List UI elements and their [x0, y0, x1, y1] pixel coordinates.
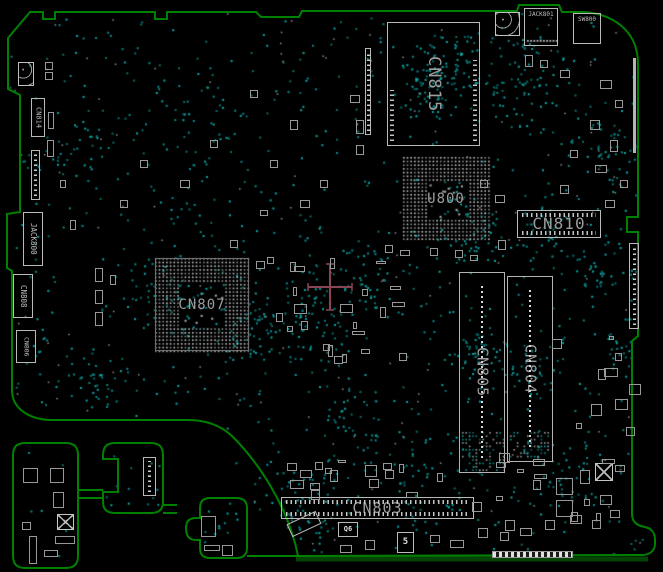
- pin-column: [473, 60, 477, 141]
- passive-footprint: [400, 250, 410, 256]
- passive-footprint: [340, 545, 352, 553]
- right-edge-strip: [633, 58, 636, 153]
- passive-footprint: [50, 468, 64, 483]
- cn814-label: CN814: [35, 107, 42, 128]
- passive-footprint: [210, 140, 218, 148]
- passive-footprint: [60, 180, 66, 188]
- corner-module: [495, 12, 520, 36]
- passive-footprint: [287, 463, 297, 471]
- passive-footprint: [276, 313, 283, 322]
- u5-label: 5: [403, 538, 408, 547]
- passive-footprint: [365, 465, 377, 477]
- pin-row: [522, 231, 596, 235]
- passive-footprint: [580, 470, 590, 484]
- passive-footprint: [615, 353, 623, 361]
- passive-footprint: [45, 72, 53, 80]
- top-left-module: [18, 62, 34, 86]
- passive-footprint: [496, 462, 506, 468]
- passive-footprint: [478, 528, 488, 538]
- cn807-label: CN807: [178, 298, 225, 312]
- passive-footprint: [362, 289, 368, 297]
- passive-footprint: [350, 95, 360, 103]
- passive-footprint: [545, 520, 555, 530]
- passive-footprint: [399, 353, 407, 361]
- passive-footprint: [584, 499, 590, 506]
- island2-connector: [143, 457, 156, 496]
- jack801-label: JACK801: [528, 12, 553, 18]
- passive-footprint: [380, 307, 386, 318]
- passive-footprint: [230, 240, 238, 248]
- component-cn815[interactable]: CN815: [387, 22, 480, 146]
- passive-footprint: [356, 120, 364, 134]
- component-q6[interactable]: Q6: [338, 522, 358, 537]
- passive-footprint: [556, 478, 573, 495]
- passive-footprint: [437, 473, 442, 482]
- passive-footprint: [390, 286, 401, 291]
- right-edge-connector: [629, 243, 639, 329]
- component-u800[interactable]: U800: [403, 157, 489, 240]
- component-cn807[interactable]: CN807: [155, 258, 249, 351]
- passive-footprint: [290, 480, 304, 489]
- passive-footprint: [338, 460, 345, 463]
- passive-footprint: [294, 266, 305, 272]
- passive-footprint: [290, 120, 298, 130]
- passive-footprint: [534, 474, 547, 480]
- passive-footprint: [287, 326, 293, 332]
- cn808-label: CN808: [19, 285, 27, 308]
- pin-column: [390, 90, 394, 141]
- sw800-label: SW800: [578, 17, 596, 23]
- passive-footprint: [95, 312, 103, 326]
- passive-footprint: [315, 462, 323, 470]
- passive-footprint: [596, 513, 601, 520]
- passive-footprint: [609, 336, 614, 341]
- pin-column: [148, 461, 151, 492]
- passive-footprint: [356, 145, 364, 155]
- passive-footprint: [480, 180, 488, 188]
- passive-footprint: [300, 200, 310, 208]
- passive-footprint: [406, 492, 418, 499]
- passive-footprint: [222, 545, 233, 556]
- passive-footprint: [353, 322, 357, 329]
- island1-qfn-ic: [57, 514, 74, 530]
- component-cn808[interactable]: CN808: [13, 274, 33, 318]
- strip-left-of-cn815: [365, 48, 371, 135]
- passive-footprint: [592, 520, 601, 529]
- passive-footprint: [552, 339, 562, 349]
- passive-footprint: [600, 495, 612, 505]
- passive-footprint: [29, 536, 37, 564]
- passive-footprint: [23, 468, 38, 483]
- passive-footprint: [48, 112, 54, 129]
- passive-footprint: [610, 140, 618, 152]
- passive-footprint: [600, 80, 612, 89]
- passive-footprint: [45, 62, 53, 70]
- passive-footprint: [325, 468, 332, 474]
- passive-footprint: [533, 459, 546, 465]
- passive-footprint: [560, 185, 569, 194]
- passive-footprint: [340, 304, 353, 313]
- passive-footprint: [620, 180, 628, 188]
- passive-footprint: [120, 200, 128, 208]
- passive-footprint: [267, 257, 275, 264]
- passive-footprint: [47, 140, 54, 157]
- slot-pin-line: [481, 285, 483, 458]
- passive-footprint: [591, 404, 603, 416]
- passive-footprint: [361, 349, 370, 354]
- passive-footprint: [455, 250, 463, 258]
- passive-footprint: [270, 160, 278, 168]
- cn815-label: CN815: [425, 56, 442, 112]
- passive-footprint: [610, 510, 620, 518]
- passive-footprint: [301, 321, 308, 331]
- passive-footprint: [605, 200, 615, 208]
- passive-footprint: [95, 290, 103, 304]
- passive-footprint: [320, 180, 328, 188]
- component-u5[interactable]: 5: [397, 532, 414, 553]
- passive-footprint: [180, 180, 190, 188]
- passive-footprint: [498, 240, 506, 250]
- component-jack800[interactable]: JACK800: [23, 212, 43, 266]
- pin-column: [633, 247, 636, 325]
- passive-footprint: [352, 331, 365, 335]
- component-cn814[interactable]: CN814: [31, 98, 45, 137]
- pin-row: [286, 500, 469, 504]
- u800-label: U800: [427, 192, 465, 206]
- passive-footprint: [629, 384, 642, 395]
- passive-footprint: [330, 258, 336, 269]
- pin-column: [34, 154, 37, 196]
- passive-footprint: [70, 220, 76, 230]
- passive-footprint: [533, 480, 541, 489]
- passive-footprint: [22, 522, 31, 530]
- passive-footprint: [505, 520, 515, 532]
- passive-footprint: [383, 463, 392, 469]
- passive-footprint: [110, 275, 116, 285]
- passive-footprint: [95, 268, 103, 282]
- pin-column: [367, 52, 370, 131]
- passive-footprint: [517, 469, 524, 472]
- passive-footprint: [500, 532, 509, 541]
- passive-footprint: [540, 60, 548, 68]
- passive-footprint: [470, 255, 478, 261]
- passive-footprint: [399, 464, 405, 473]
- passive-footprint: [392, 302, 405, 306]
- bottom-right-qfn-ic: [595, 463, 613, 481]
- passive-footprint: [430, 248, 438, 256]
- passive-footprint: [140, 160, 148, 168]
- passive-footprint: [250, 90, 258, 98]
- passive-footprint: [204, 545, 220, 551]
- slot-pin-line: [529, 289, 531, 447]
- component-cn805[interactable]: CN805: [459, 272, 505, 473]
- component-cn806[interactable]: CN806: [16, 330, 36, 363]
- passive-footprint: [615, 399, 627, 410]
- q6-label: Q6: [344, 526, 352, 533]
- bottom-edge-connector: [492, 551, 573, 558]
- passive-footprint: [472, 502, 482, 513]
- passive-footprint: [334, 356, 342, 364]
- passive-footprint: [626, 427, 635, 436]
- jack800-label: JACK800: [29, 223, 37, 255]
- connector-under-cn814: [31, 150, 40, 200]
- passive-footprint: [560, 70, 570, 78]
- passive-footprint: [595, 165, 607, 173]
- component-sw800[interactable]: SW800: [573, 13, 601, 44]
- passive-footprint: [604, 368, 617, 377]
- passive-footprint: [53, 492, 64, 508]
- cn810-label: CN810: [532, 216, 585, 232]
- passive-footprint: [376, 261, 386, 264]
- passive-footprint: [590, 120, 600, 130]
- passive-footprint: [55, 536, 75, 544]
- passive-footprint: [602, 459, 616, 464]
- passive-footprint: [615, 465, 625, 472]
- passive-footprint: [450, 540, 464, 548]
- component-cn810[interactable]: CN810: [517, 210, 601, 238]
- passive-footprint: [615, 100, 623, 108]
- passive-footprint: [201, 516, 216, 537]
- passive-footprint: [576, 423, 582, 429]
- cn806-label: CN806: [23, 337, 30, 357]
- boardview-canvas[interactable]: CN814JACK800CN808CN806CN815U800CN807CN81…: [0, 0, 663, 572]
- passive-footprint: [328, 345, 333, 357]
- passive-footprint: [570, 150, 578, 158]
- passive-footprint: [571, 512, 578, 522]
- passive-footprint: [365, 540, 375, 550]
- component-jack801[interactable]: JACK801: [524, 8, 558, 46]
- passive-footprint: [44, 550, 58, 557]
- passive-footprint: [293, 287, 298, 296]
- passive-footprint: [496, 496, 503, 501]
- passive-footprint: [430, 535, 440, 543]
- component-cn804[interactable]: CN804: [507, 276, 553, 462]
- passive-footprint: [369, 479, 378, 487]
- passive-footprint: [520, 528, 532, 536]
- passive-footprint: [525, 55, 533, 67]
- passive-footprint: [385, 470, 394, 479]
- passive-footprint: [294, 304, 306, 313]
- components-layer: CN814JACK800CN808CN806CN815U800CN807CN81…: [0, 0, 663, 572]
- passive-footprint: [311, 490, 320, 501]
- passive-footprint: [260, 210, 268, 216]
- passive-footprint: [495, 195, 505, 203]
- passive-footprint: [385, 245, 393, 253]
- pin-row: [522, 213, 596, 217]
- passive-footprint: [300, 470, 312, 478]
- passive-footprint: [256, 261, 266, 269]
